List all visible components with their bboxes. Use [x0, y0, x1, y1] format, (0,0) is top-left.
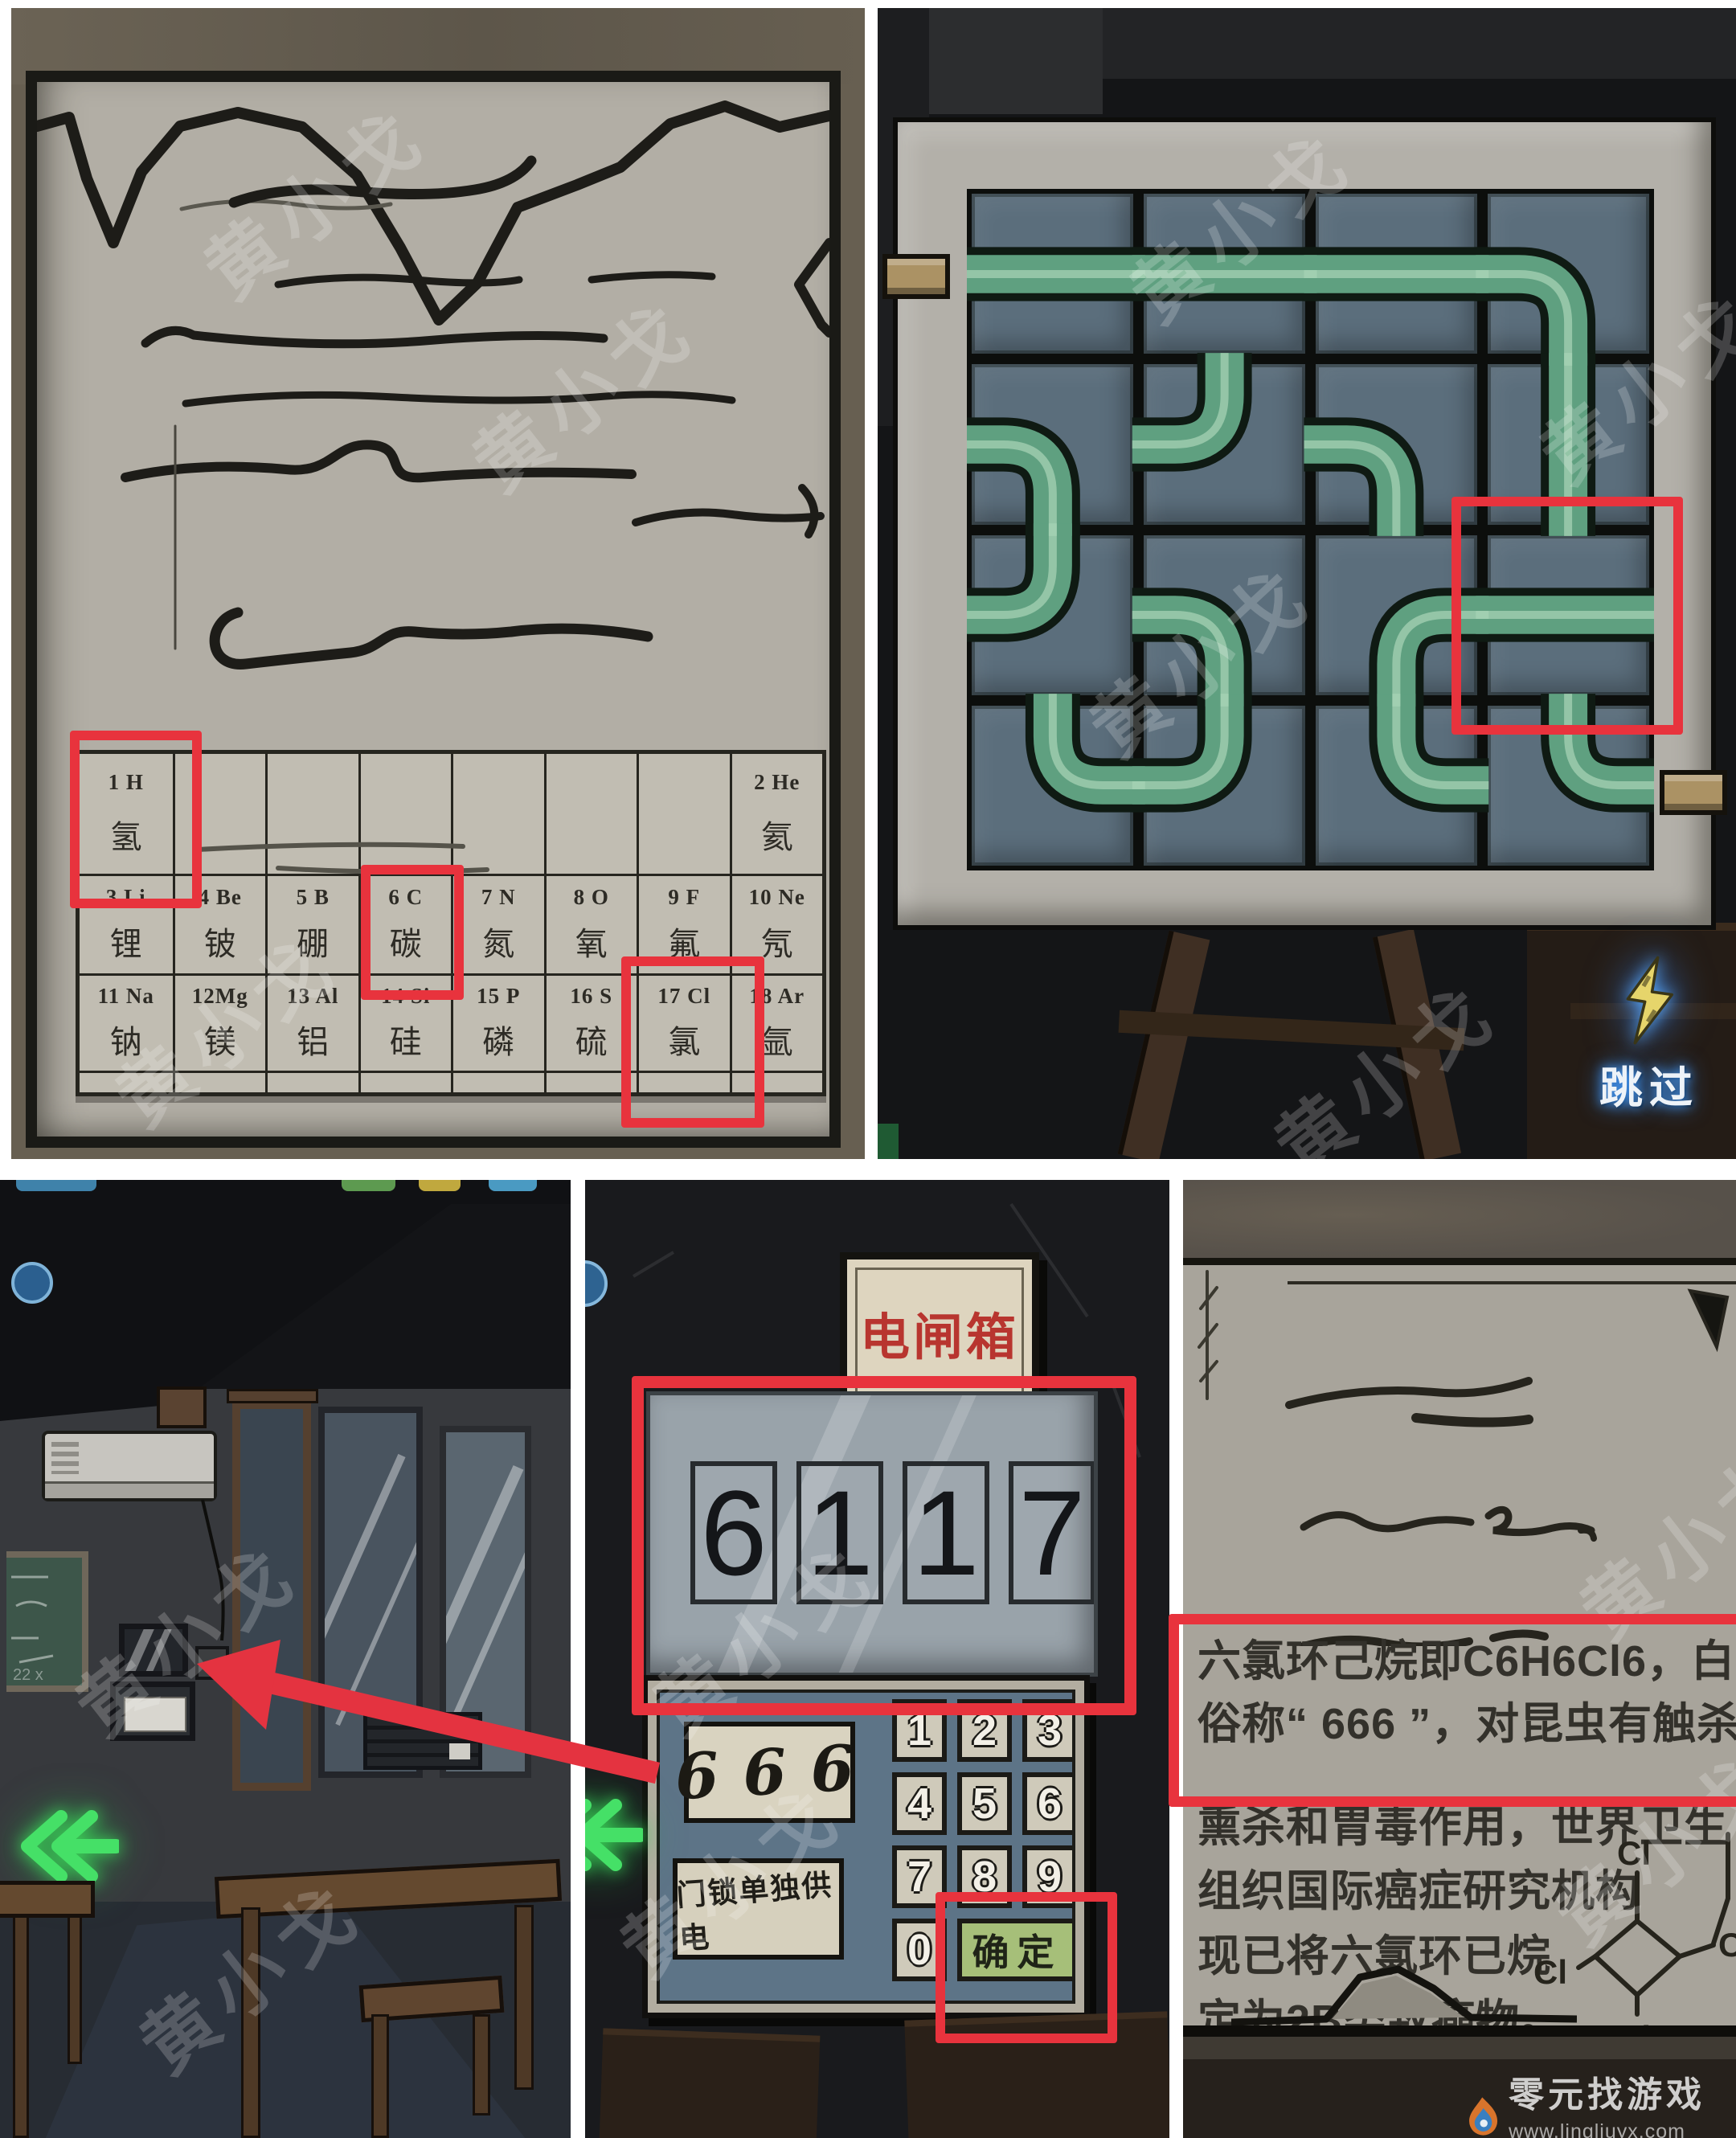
highlight-code-display	[632, 1376, 1136, 1715]
highlight-chem-text	[1169, 1614, 1736, 1807]
highlight-pipe-tile	[1451, 497, 1683, 735]
highlight-element-c	[361, 865, 464, 1000]
annotation-arrow	[0, 0, 1736, 2138]
highlight-confirm-button	[936, 1892, 1117, 2043]
highlight-element-cl	[621, 956, 764, 1128]
highlight-element-h	[70, 731, 202, 908]
walkthrough-page: 1 H氢2 He氦3 Li锂4 Be铍5 B硼6 C碳7 N氮8 O氧9 F氟1…	[0, 0, 1736, 2138]
